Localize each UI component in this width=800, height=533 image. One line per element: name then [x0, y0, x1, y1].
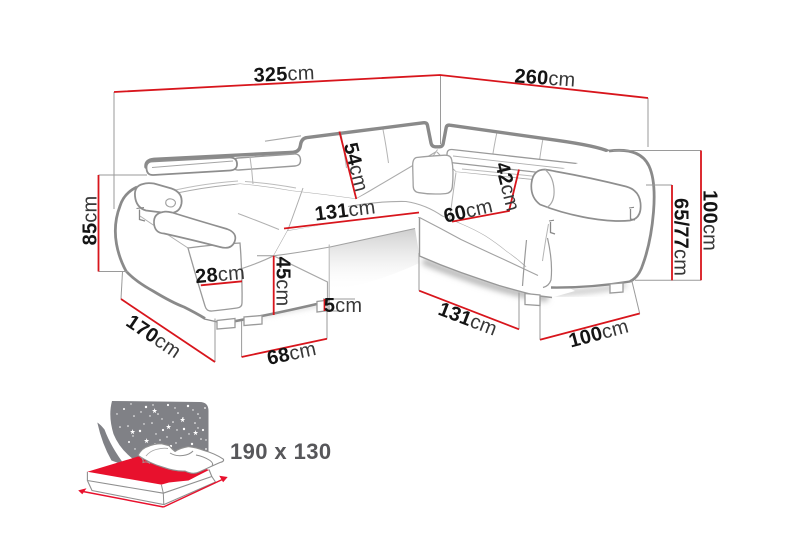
svg-text:325cm: 325cm: [253, 62, 315, 87]
svg-text:28cm: 28cm: [194, 262, 245, 288]
svg-text:65/77cm: 65/77cm: [670, 198, 692, 276]
svg-text:85cm: 85cm: [80, 196, 102, 246]
svg-text:5cm: 5cm: [324, 295, 362, 317]
svg-text:100cm: 100cm: [699, 190, 721, 251]
svg-text:260cm: 260cm: [514, 65, 576, 91]
svg-text:190 x 130: 190 x 130: [230, 439, 331, 464]
svg-text:45cm: 45cm: [272, 257, 294, 307]
